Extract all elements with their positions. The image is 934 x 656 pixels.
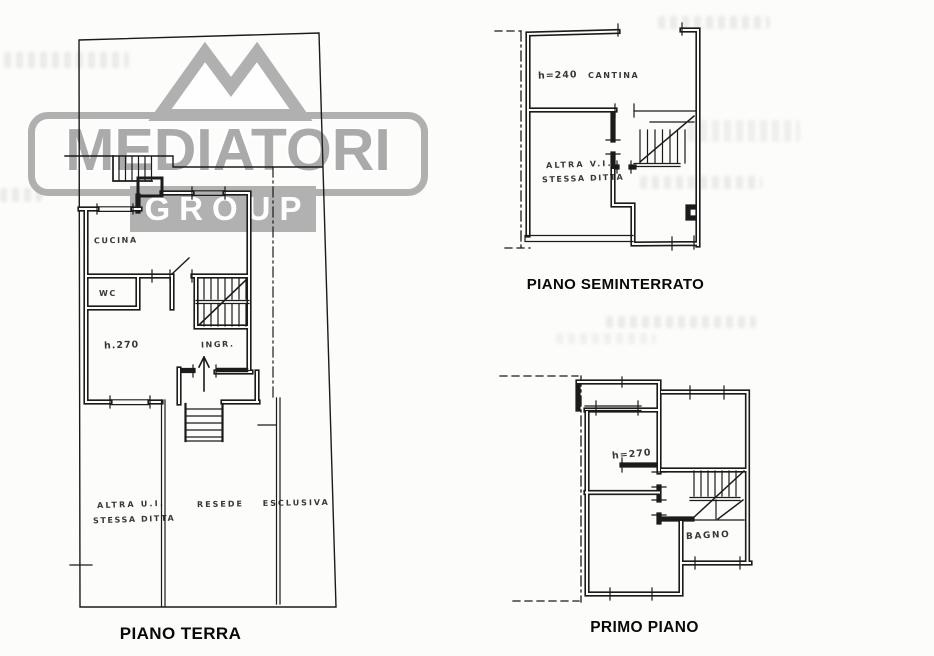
scanned-floorplan-page: MEDIATORI GROUP [0, 0, 934, 656]
room-label-ingresso: INGR. [201, 339, 235, 349]
caption-primo-piano: PRIMO PIANO [572, 619, 717, 637]
room-label-cantina: CANTINA [588, 71, 639, 80]
primo-piano-drawing [500, 376, 750, 602]
caption-piano-seminterrato: PIANO SEMINTERRATO [518, 276, 713, 293]
room-label-height-terra: h.270 [104, 339, 140, 351]
room-label-cucina: CUCINA [94, 236, 138, 246]
floor-plan-drawing [0, 0, 934, 656]
piano-seminterrato-drawing [495, 23, 698, 250]
caption-piano-terra: PIANO TERRA [108, 624, 253, 644]
room-label-wc: WC [99, 289, 117, 298]
room-label-height-seminterrato: h=240 [538, 69, 578, 81]
